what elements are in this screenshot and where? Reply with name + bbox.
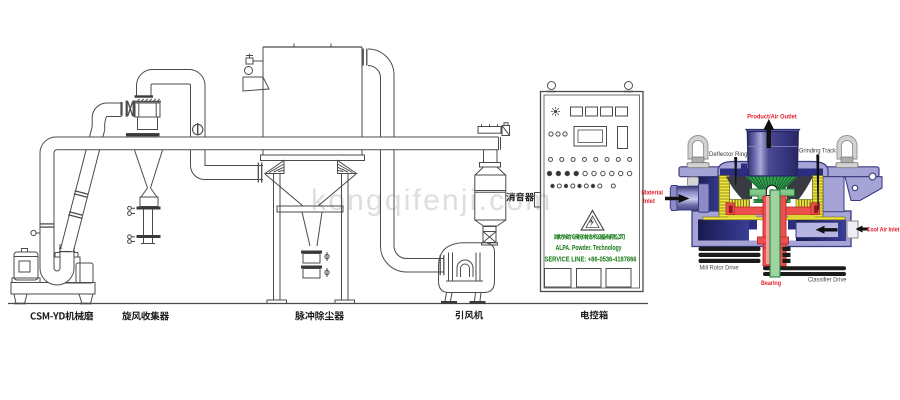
- svg-text:Material: Material: [642, 189, 664, 196]
- svg-text:Classifier Drive: Classifier Drive: [808, 277, 847, 284]
- svg-text:Product/Air Outlet: Product/Air Outlet: [747, 114, 797, 121]
- svg-text:Inlet: Inlet: [643, 198, 656, 205]
- svg-text:kongqifenji.com: kongqifenji.com: [311, 184, 552, 217]
- svg-text:Deflector Ring: Deflector Ring: [709, 151, 748, 158]
- svg-text:Cool Air Inlet: Cool Air Inlet: [867, 226, 900, 233]
- svg-text:Mill Rotor Drive: Mill Rotor Drive: [700, 265, 740, 272]
- svg-text:ALPA. Powder. Technology: ALPA. Powder. Technology: [556, 245, 622, 252]
- svg-text:Bearing: Bearing: [761, 280, 781, 287]
- svg-text:Grinding Track: Grinding Track: [799, 148, 837, 155]
- svg-text:SERVICE LINE: +86-0536-4187866: SERVICE LINE: +86-0536-4187866: [545, 257, 637, 264]
